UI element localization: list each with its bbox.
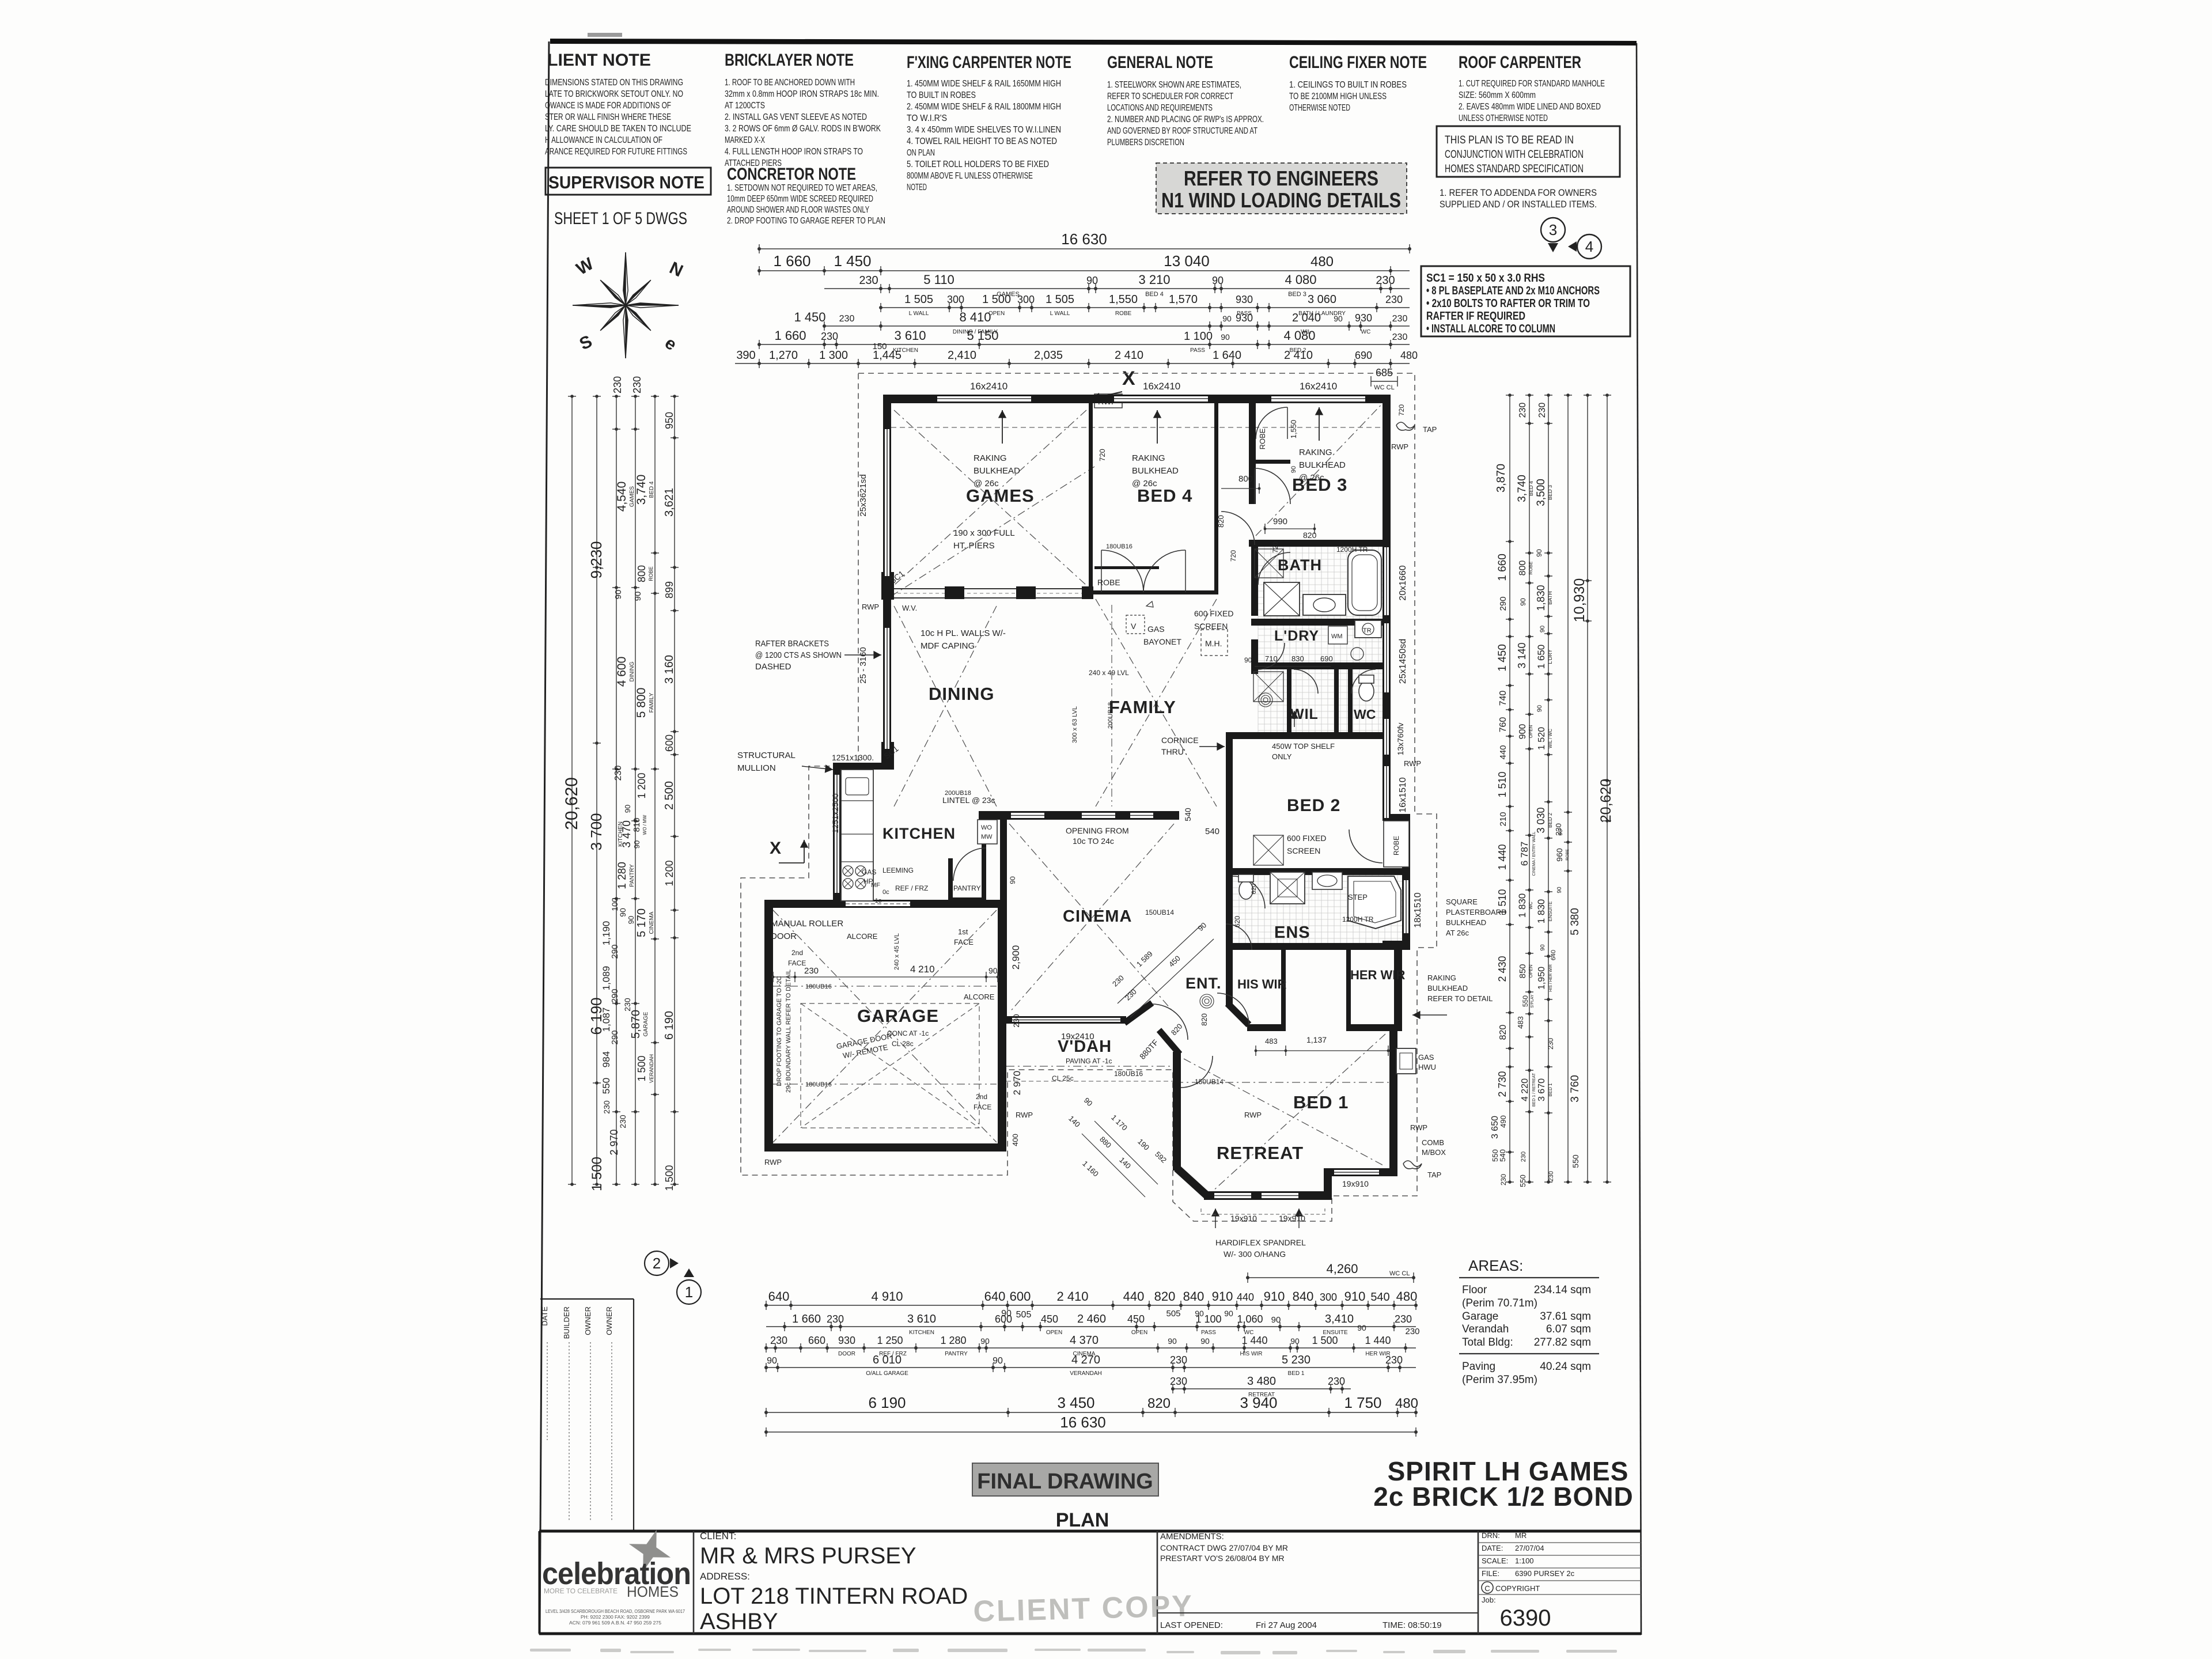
svg-text:GARAGE: GARAGE	[857, 1006, 939, 1026]
svg-text:Total Bldg:: Total Bldg:	[1462, 1336, 1513, 1349]
svg-text:2nd: 2nd	[791, 949, 803, 957]
svg-text:1 440: 1 440	[1497, 844, 1508, 870]
svg-text:AREAS:: AREAS:	[1468, 1257, 1523, 1274]
svg-text:3 450: 3 450	[1057, 1394, 1094, 1411]
svg-text:600: 600	[1010, 1289, 1031, 1304]
svg-text:PANTRY: PANTRY	[953, 884, 981, 892]
svg-text:MF: MF	[871, 882, 880, 889]
svg-text:3 160: 3 160	[663, 655, 676, 684]
svg-text:300 x 63 LVL: 300 x 63 LVL	[1071, 706, 1078, 743]
svg-text:N1 WIND LOADING DETAILS: N1 WIND LOADING DETAILS	[1161, 188, 1401, 212]
svg-text:KITCHEN: KITCHEN	[909, 1330, 934, 1336]
svg-text:MANUAL ROLLER: MANUAL ROLLER	[771, 919, 843, 929]
svg-text:640: 640	[1550, 950, 1557, 960]
svg-text:1. CUT REQUIRED FOR STANDARD M: 1. CUT REQUIRED FOR STANDARD MANHOLE	[1459, 79, 1605, 89]
svg-text:BED 1: BED 1	[1548, 1083, 1553, 1097]
svg-text:230: 230	[623, 998, 632, 1012]
svg-text:ENSUITE: ENSUITE	[1548, 902, 1553, 922]
svg-text:CEILING FIXER NOTE: CEILING FIXER NOTE	[1289, 53, 1427, 72]
svg-text:600: 600	[995, 1313, 1012, 1325]
svg-text:390: 390	[736, 349, 755, 362]
svg-text:ROBE: ROBE	[1528, 562, 1533, 575]
svg-text:CL 28c: CL 28c	[892, 1040, 914, 1048]
svg-text:930: 930	[1236, 312, 1253, 324]
svg-text:4 910: 4 910	[871, 1289, 903, 1304]
svg-text:930: 930	[1355, 312, 1372, 324]
svg-text:-1c: -1c	[873, 897, 882, 904]
svg-text:HARDIFLEX SPANDREL: HARDIFLEX SPANDREL	[1215, 1238, 1306, 1247]
svg-text:@ 1200 CTS AS SHOWN: @ 1200 CTS AS SHOWN	[755, 650, 842, 660]
svg-text:• 8 PL BASEPLATE AND 2x M10 AN: • 8 PL BASEPLATE AND 2x M10 ANCHORS	[1426, 285, 1600, 297]
svg-text:984: 984	[601, 1051, 612, 1067]
svg-text:BED 1 / RETREAT: BED 1 / RETREAT	[1532, 1073, 1536, 1107]
svg-text:2. DROP FOOTING TO GARAGE REFE: 2. DROP FOOTING TO GARAGE REFER TO PLAN	[727, 216, 885, 226]
svg-text:230: 230	[612, 376, 623, 393]
svg-text:AT 26c: AT 26c	[1446, 929, 1469, 937]
svg-text:90: 90	[1221, 332, 1230, 342]
svg-text:1 500: 1 500	[982, 293, 1011, 306]
svg-text:RWP: RWP	[1016, 1111, 1033, 1119]
svg-text:800: 800	[636, 565, 647, 582]
svg-text:1 830: 1 830	[1536, 899, 1547, 924]
svg-text:W/- 300 O/HANG: W/- 300 O/HANG	[1224, 1249, 1286, 1259]
svg-text:2 730: 2 730	[1497, 1071, 1508, 1097]
svg-text:1. STEELWORK SHOWN ARE ESTIMAT: 1. STEELWORK SHOWN ARE ESTIMATES,	[1107, 80, 1241, 90]
svg-text:DRN:: DRN:	[1482, 1531, 1500, 1540]
svg-text:230: 230	[1170, 1376, 1187, 1387]
svg-text:190 x 300 FULL: 190 x 300 FULL	[953, 528, 1015, 538]
svg-text:1 500: 1 500	[589, 1157, 605, 1191]
svg-text:4 600: 4 600	[615, 657, 628, 687]
svg-text:90: 90	[613, 590, 623, 600]
svg-text:230: 230	[1385, 1354, 1403, 1366]
svg-text:990: 990	[1273, 517, 1287, 527]
svg-text:1,445: 1,445	[873, 349, 902, 362]
svg-text:300: 300	[1017, 294, 1035, 305]
svg-text:90: 90	[1271, 1315, 1281, 1325]
svg-text:25 - 3160: 25 - 3160	[858, 647, 868, 683]
svg-text:200UB18: 200UB18	[1107, 702, 1114, 729]
svg-text:540: 540	[1498, 1149, 1507, 1162]
svg-text:RAKING: RAKING	[1427, 974, 1456, 982]
svg-text:H ALLOWANCE IN CALCULATION OF: H ALLOWANCE IN CALCULATION OF	[545, 135, 662, 145]
svg-text:480: 480	[1396, 1289, 1418, 1304]
svg-text:LIENT NOTE: LIENT NOTE	[547, 51, 651, 70]
svg-text:290: 290	[610, 944, 620, 959]
svg-text:1200H TR: 1200H TR	[1336, 546, 1368, 554]
svg-text:REFER TO DETAIL: REFER TO DETAIL	[1427, 994, 1493, 1003]
svg-text:240 x 45 LVL: 240 x 45 LVL	[893, 933, 900, 970]
svg-text:BED 4: BED 4	[649, 481, 655, 498]
svg-text:910: 910	[1344, 1289, 1366, 1304]
svg-text:F'XING CARPENTER NOTE: F'XING CARPENTER NOTE	[907, 53, 1071, 72]
svg-text:483: 483	[1265, 1037, 1278, 1046]
svg-text:ROBE: ROBE	[1566, 849, 1570, 861]
svg-text:2 040: 2 040	[1292, 312, 1321, 324]
svg-text:Fri 27 Aug 2004: Fri 27 Aug 2004	[1256, 1620, 1317, 1630]
svg-text:ON PLAN: ON PLAN	[907, 148, 935, 158]
svg-text:BED 1: BED 1	[1288, 1370, 1305, 1377]
svg-text:WC: WC	[1528, 902, 1533, 910]
svg-text:FAMILY: FAMILY	[1109, 697, 1176, 717]
svg-text:PAVING AT -1c: PAVING AT -1c	[1066, 1057, 1112, 1065]
svg-text:690: 690	[1355, 350, 1372, 361]
svg-text:ROBE: ROBE	[648, 566, 654, 581]
svg-text:850: 850	[1518, 964, 1528, 978]
svg-text:4,540: 4,540	[615, 482, 628, 512]
svg-text:THRU'.: THRU'.	[1161, 747, 1187, 756]
svg-text:6390: 6390	[1500, 1605, 1551, 1631]
svg-text:SUPERVISOR NOTE: SUPERVISOR NOTE	[548, 172, 704, 192]
svg-text:RWP: RWP	[1410, 1123, 1427, 1132]
svg-text:1:100: 1:100	[1515, 1556, 1534, 1565]
svg-text:230: 230	[827, 1313, 844, 1325]
svg-text:WO: WO	[981, 824, 992, 831]
svg-text:10c H PL. WALLS W/-: 10c H PL. WALLS W/-	[921, 628, 1006, 638]
svg-text:210: 210	[1498, 812, 1508, 826]
svg-text:AND GOVERNED BY ROOF STRUCTURE: AND GOVERNED BY ROOF STRUCTURE AND AT	[1107, 126, 1257, 136]
svg-text:230: 230	[1520, 1152, 1527, 1162]
svg-text:230: 230	[1548, 1171, 1555, 1181]
svg-text:230: 230	[1392, 332, 1408, 342]
svg-text:230: 230	[602, 1100, 611, 1114]
svg-text:M.H.: M.H.	[1205, 639, 1222, 648]
svg-text:Floor: Floor	[1462, 1284, 1487, 1296]
svg-text:RAFTER IF REQUIRED: RAFTER IF REQUIRED	[1426, 310, 1525, 323]
svg-text:3,740: 3,740	[635, 475, 648, 505]
svg-text:90: 90	[1539, 626, 1546, 632]
svg-text:1 660: 1 660	[773, 252, 810, 270]
svg-text:234.14 sqm: 234.14 sqm	[1534, 1284, 1591, 1296]
svg-text:CLIENT:: CLIENT:	[700, 1531, 736, 1541]
svg-text:DATE:: DATE:	[1482, 1544, 1503, 1552]
svg-text:3 060: 3 060	[1308, 293, 1336, 306]
svg-text:1 660: 1 660	[792, 1313, 821, 1325]
svg-text:ROBE: ROBE	[1115, 310, 1132, 317]
svg-text:3,740: 3,740	[1516, 475, 1528, 502]
svg-text:720: 720	[1397, 404, 1406, 416]
svg-text:FILE:: FILE:	[1482, 1569, 1499, 1578]
svg-text:1 450: 1 450	[794, 310, 825, 324]
svg-text:240 x 49 LVL: 240 x 49 LVL	[1089, 669, 1129, 677]
svg-text:4 210: 4 210	[910, 964, 935, 975]
svg-text:4. TOWEL RAIL HEIGHT TO BE AS: 4. TOWEL RAIL HEIGHT TO BE AS NOTED	[907, 137, 1057, 146]
svg-text:VERANDAH: VERANDAH	[1070, 1370, 1102, 1377]
svg-text:910: 910	[1264, 1289, 1285, 1304]
svg-text:90: 90	[1540, 944, 1546, 951]
svg-text:400: 400	[1011, 1134, 1020, 1146]
svg-text:640: 640	[984, 1289, 1006, 1304]
svg-text:16 630: 16 630	[1061, 230, 1107, 248]
svg-text:VERANDAH: VERANDAH	[649, 1054, 654, 1083]
svg-text:L'DRY: L'DRY	[1547, 649, 1553, 664]
svg-text:Garage: Garage	[1462, 1310, 1498, 1323]
svg-text:90: 90	[1535, 549, 1543, 557]
svg-text:RWP: RWP	[1244, 1111, 1262, 1119]
svg-text:1 500: 1 500	[1312, 1335, 1338, 1346]
svg-text:230: 230	[1499, 1174, 1508, 1185]
svg-text:HIS WIR: HIS WIR	[1237, 977, 1287, 991]
svg-text:90: 90	[988, 966, 998, 975]
svg-text:16 630: 16 630	[1060, 1414, 1106, 1431]
svg-text:1 520: 1 520	[1537, 727, 1547, 750]
svg-text:HER WIR: HER WIR	[1350, 968, 1405, 982]
svg-text:820: 820	[1154, 1289, 1176, 1304]
svg-text:DATE: DATE	[540, 1306, 549, 1326]
svg-text:810: 810	[632, 817, 642, 832]
svg-text:277.82 sqm: 277.82 sqm	[1534, 1336, 1591, 1349]
svg-text:9,230: 9,230	[588, 541, 605, 578]
svg-text:HIS WIR: HIS WIR	[1240, 1351, 1263, 1357]
svg-text:NOTED: NOTED	[907, 183, 927, 192]
svg-text:19x910: 19x910	[1230, 1214, 1257, 1223]
svg-text:HOMES: HOMES	[627, 1583, 679, 1600]
svg-text:WIL: WIL	[1290, 706, 1319, 722]
svg-text:MULLION: MULLION	[737, 763, 776, 773]
svg-text:2,900: 2,900	[1010, 945, 1021, 970]
svg-text:1 200: 1 200	[664, 860, 675, 886]
svg-text:DINING: DINING	[929, 684, 995, 704]
svg-text:440: 440	[1498, 745, 1508, 759]
svg-text:TIME: 08:50:19: TIME: 08:50:19	[1382, 1620, 1442, 1630]
svg-text:ALCORE: ALCORE	[964, 993, 995, 1001]
svg-text:ROOF CARPENTER: ROOF CARPENTER	[1459, 53, 1581, 72]
svg-text:480: 480	[1395, 1396, 1418, 1411]
svg-text:BULKHEAD: BULKHEAD	[1299, 460, 1346, 470]
svg-text:710: 710	[1265, 654, 1278, 663]
svg-text:6 190: 6 190	[868, 1394, 906, 1411]
svg-text:90: 90	[1168, 1336, 1177, 1346]
svg-text:230: 230	[1376, 274, 1395, 287]
svg-text:TR: TR	[1363, 627, 1372, 634]
svg-text:DOOR: DOOR	[838, 1351, 855, 1357]
svg-text:LINTEL @ 23c: LINTEL @ 23c	[942, 796, 995, 805]
svg-text:SCREEN: SCREEN	[1287, 846, 1320, 855]
svg-text:DASHED: DASHED	[755, 662, 791, 672]
svg-text:483: 483	[1516, 1016, 1525, 1029]
svg-text:1st: 1st	[958, 927, 968, 936]
svg-text:2 430: 2 430	[1497, 956, 1508, 982]
svg-text:6 010: 6 010	[873, 1354, 902, 1366]
svg-text:960: 960	[1555, 848, 1564, 862]
svg-text:O/ALL GARAGE: O/ALL GARAGE	[866, 1370, 908, 1377]
svg-text:TO BUILT IN ROBES: TO BUILT IN ROBES	[907, 90, 976, 100]
svg-text:GAS: GAS	[1147, 624, 1165, 634]
svg-text:820: 820	[1217, 515, 1225, 528]
svg-text:16x2410: 16x2410	[1143, 381, 1180, 392]
svg-text:90: 90	[1200, 1336, 1210, 1346]
svg-text:3 610: 3 610	[894, 328, 926, 343]
svg-text:90: 90	[1290, 466, 1297, 473]
svg-text:27/07/04: 27/07/04	[1515, 1544, 1544, 1552]
svg-text:2 970: 2 970	[1012, 1071, 1022, 1096]
svg-text:1,137: 1,137	[1306, 1035, 1327, 1044]
svg-text:3 760: 3 760	[1569, 1075, 1581, 1103]
svg-text:PLUMBERS DISCRETION: PLUMBERS DISCRETION	[1107, 138, 1184, 147]
svg-text:LEVEL 3/428 SCARBOROUGH BEACH: LEVEL 3/428 SCARBOROUGH BEACH ROAD, OSBO…	[546, 1608, 685, 1614]
svg-text:1. CEILINGS TO BUILT IN ROBES: 1. CEILINGS TO BUILT IN ROBES	[1289, 80, 1407, 90]
svg-text:1. REFER TO ADDENDA FOR OWNERS: 1. REFER TO ADDENDA FOR OWNERS	[1440, 187, 1597, 198]
svg-text:OPENING FROM: OPENING FROM	[1066, 826, 1129, 835]
svg-text:COMB: COMB	[1422, 1138, 1444, 1147]
svg-text:BATH: BATH	[1547, 591, 1553, 604]
svg-text:600 FIXED: 600 FIXED	[1194, 609, 1233, 618]
svg-text:THIS PLAN IS TO BE READ IN: THIS PLAN IS TO BE READ IN	[1445, 134, 1574, 146]
svg-text:ARANCE REQUIRED FOR FUTURE FIT: ARANCE REQUIRED FOR FUTURE FITTINGS	[545, 147, 687, 157]
svg-text:Verandah: Verandah	[1462, 1323, 1509, 1335]
svg-text:480: 480	[1400, 350, 1418, 361]
svg-text:LATE TO BRICKWORK SETOUT ONLY.: LATE TO BRICKWORK SETOUT ONLY. NO	[545, 89, 683, 99]
svg-text:37.61 sqm: 37.61 sqm	[1540, 1310, 1591, 1323]
svg-text:5 230: 5 230	[1282, 1354, 1310, 1366]
svg-text:90: 90	[980, 1336, 990, 1346]
svg-text:550: 550	[1521, 995, 1529, 1007]
svg-text:BED 4: BED 4	[1137, 486, 1192, 506]
svg-text:600 FIXED: 600 FIXED	[1287, 834, 1326, 843]
svg-text:1,830: 1,830	[1535, 585, 1547, 611]
svg-text:290: 290	[610, 988, 620, 1003]
svg-text:25x3621sd: 25x3621sd	[858, 474, 868, 516]
svg-text:L'DRY: L'DRY	[1274, 628, 1319, 644]
svg-text:HOMES STANDARD SPECIFICATION: HOMES STANDARD SPECIFICATION	[1445, 162, 1584, 175]
svg-text:1 450: 1 450	[834, 252, 871, 270]
svg-text:25x1450sd: 25x1450sd	[1398, 639, 1408, 684]
svg-text:1 100: 1 100	[1195, 1313, 1221, 1325]
svg-text:2,410: 2,410	[948, 349, 976, 362]
svg-text:MW: MW	[981, 834, 993, 840]
svg-text:540: 540	[1370, 1291, 1389, 1304]
svg-text:ROBE: ROBE	[1392, 836, 1400, 855]
svg-text:3 480: 3 480	[1247, 1375, 1276, 1388]
svg-text:SC1 = 150 x 50 x 3.0 RHS: SC1 = 150 x 50 x 3.0 RHS	[1426, 272, 1545, 285]
svg-text:1. SETDOWN NOT REQUIRED TO WET: 1. SETDOWN NOT REQUIRED TO WET AREAS,	[727, 183, 877, 193]
svg-text:V: V	[1131, 622, 1137, 631]
svg-text:620: 620	[1233, 916, 1241, 927]
svg-text:• 2x10 BOLTS TO RAFTER OR TRIM: • 2x10 BOLTS TO RAFTER OR TRIM TO	[1426, 297, 1590, 310]
svg-text:480: 480	[1310, 254, 1334, 270]
svg-text:W.V.: W.V.	[902, 604, 917, 612]
svg-text:1 660: 1 660	[1497, 554, 1509, 581]
svg-text:2,035: 2,035	[1034, 349, 1063, 362]
svg-text:230: 230	[859, 274, 878, 287]
svg-text:ENT.: ENT.	[1185, 975, 1222, 992]
svg-text:3,621: 3,621	[663, 488, 676, 517]
svg-text:16x2410: 16x2410	[970, 381, 1007, 392]
svg-text:KITCHEN: KITCHEN	[882, 825, 956, 842]
svg-text:450: 450	[1127, 1313, 1145, 1325]
svg-text:230: 230	[1518, 403, 1528, 418]
svg-text:@ 26c: @ 26c	[1132, 479, 1157, 488]
svg-text:90: 90	[1086, 275, 1098, 286]
svg-text:4: 4	[1585, 238, 1593, 255]
svg-text:UNLESS OTHERWISE NOTED: UNLESS OTHERWISE NOTED	[1459, 113, 1548, 123]
svg-text:GENERAL NOTE: GENERAL NOTE	[1107, 53, 1213, 72]
svg-text:4 370: 4 370	[1070, 1334, 1099, 1347]
svg-text:180UB16: 180UB16	[1114, 1070, 1143, 1078]
svg-text:90: 90	[1290, 1336, 1300, 1346]
svg-text:BED 3: BED 3	[1288, 291, 1306, 298]
svg-text:BED 3: BED 3	[1547, 485, 1553, 500]
svg-text:RAKING: RAKING	[1299, 448, 1332, 457]
svg-text:LOT 218 TINTERN ROAD: LOT 218 TINTERN ROAD	[700, 1584, 968, 1609]
svg-text:2 460: 2 460	[1077, 1313, 1106, 1325]
svg-text:2 410: 2 410	[1115, 349, 1143, 362]
svg-text:L WALL: L WALL	[1050, 310, 1070, 317]
svg-text:MR: MR	[1515, 1531, 1527, 1540]
svg-text:18x1510: 18x1510	[1413, 892, 1423, 927]
svg-text:BULKHEAD: BULKHEAD	[1446, 918, 1486, 927]
svg-text:230: 230	[1012, 1014, 1021, 1028]
svg-text:230: 230	[1547, 1038, 1555, 1050]
svg-text:440: 440	[1237, 1291, 1254, 1303]
svg-text:2 970: 2 970	[608, 1129, 620, 1155]
svg-text:PASS: PASS	[1201, 1330, 1216, 1336]
svg-text:LOCATIONS AND REQUIREMENTS: LOCATIONS AND REQUIREMENTS	[1107, 103, 1213, 113]
svg-text:CONTRACT DWG 27/07/04 BY MR: CONTRACT DWG 27/07/04 BY MR	[1160, 1543, 1288, 1552]
svg-text:900: 900	[1518, 724, 1528, 740]
svg-text:2. NUMBER AND PLACING OF RWP's: 2. NUMBER AND PLACING OF RWP's IS APPROX…	[1107, 115, 1264, 124]
svg-text:450: 450	[1041, 1313, 1058, 1325]
svg-text:180UB16: 180UB16	[805, 983, 832, 990]
svg-text:1 830: 1 830	[1517, 893, 1528, 918]
svg-text:820: 820	[1498, 1025, 1508, 1040]
svg-text:GAS: GAS	[862, 868, 876, 876]
svg-text:150UB14: 150UB14	[1145, 908, 1174, 916]
svg-text:910: 910	[1212, 1289, 1233, 1304]
svg-text:5 380: 5 380	[1569, 908, 1581, 935]
svg-text:AROUND SHOWER AND FLOOR WASTES: AROUND SHOWER AND FLOOR WASTES ONLY	[727, 205, 869, 215]
svg-text:440: 440	[1123, 1289, 1145, 1304]
svg-text:230: 230	[1170, 1354, 1187, 1366]
svg-text:150UB14: 150UB14	[1195, 1078, 1224, 1086]
svg-text:L WALL: L WALL	[909, 310, 929, 317]
svg-text:13x760fv: 13x760fv	[1396, 723, 1405, 756]
svg-text:ACN: 079 961 509 A.B.N. 47 950: ACN: 079 961 509 A.B.N. 47 950 259 275	[569, 1620, 661, 1626]
svg-text:950: 950	[664, 412, 675, 429]
svg-text:ENS: ENS	[1274, 923, 1310, 942]
svg-text:20,620: 20,620	[1598, 779, 1614, 823]
svg-text:GAS: GAS	[1418, 1053, 1434, 1062]
svg-text:830: 830	[1291, 654, 1304, 663]
svg-text:5 170: 5 170	[635, 908, 648, 937]
svg-text:10c TO 24c: 10c TO 24c	[1073, 836, 1114, 846]
svg-text:180UB16: 180UB16	[1106, 543, 1132, 550]
svg-text:DIMENSIONS STATED ON THIS DRAW: DIMENSIONS STATED ON THIS DRAWING	[545, 78, 683, 88]
svg-text:1 650: 1 650	[1536, 645, 1547, 669]
svg-text:660: 660	[808, 1335, 825, 1346]
svg-text:1251x1300.: 1251x1300.	[832, 753, 874, 762]
svg-text:3,410: 3,410	[1325, 1313, 1354, 1325]
svg-text:6 787: 6 787	[1519, 842, 1530, 866]
svg-text:FINAL DRAWING: FINAL DRAWING	[977, 1469, 1153, 1494]
svg-text:230: 230	[839, 314, 855, 324]
svg-text:32mm x 0.8mm HOOP IRON STRAPS: 32mm x 0.8mm HOOP IRON STRAPS 18c MIN.	[725, 89, 879, 99]
svg-text:MDF CAPING: MDF CAPING	[921, 641, 975, 651]
svg-text:1 500: 1 500	[636, 1055, 647, 1081]
svg-text:WO / MW: WO / MW	[642, 815, 647, 835]
svg-text:Paving: Paving	[1462, 1361, 1495, 1373]
svg-text:4 220: 4 220	[1520, 1078, 1530, 1101]
svg-text:GAMES: GAMES	[966, 486, 1035, 506]
svg-text:230: 230	[631, 376, 643, 393]
svg-text:ALCORE: ALCORE	[847, 932, 878, 941]
svg-text:640: 640	[768, 1289, 790, 1304]
svg-text:230: 230	[770, 1335, 787, 1346]
svg-text:20x1660: 20x1660	[1398, 565, 1408, 600]
svg-text:90: 90	[1224, 1309, 1233, 1318]
svg-text:SHEET 1 OF 5 DWGS: SHEET 1 OF 5 DWGS	[554, 209, 687, 228]
svg-text:HT. PIERS: HT. PIERS	[953, 541, 995, 551]
